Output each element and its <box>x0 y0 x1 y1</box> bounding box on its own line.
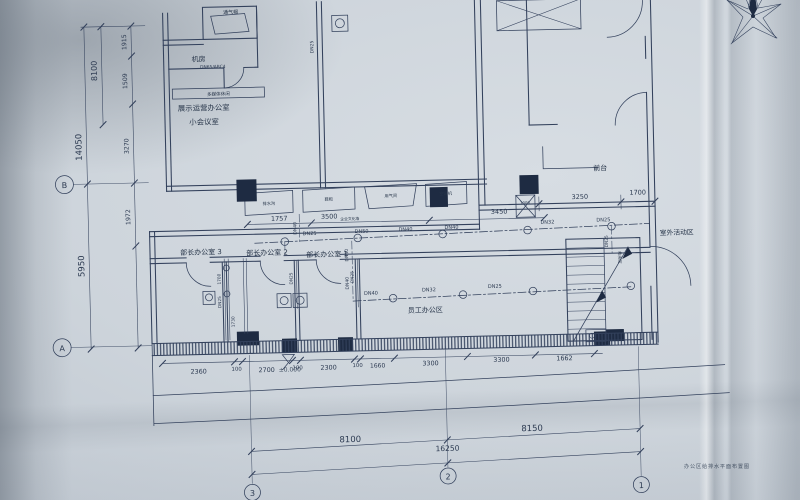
pipe-low-3: DN25 <box>488 284 502 290</box>
dim-overall-8100: 8100 <box>339 435 361 445</box>
label-vent-cap: 通气帽 <box>223 9 238 16</box>
dim-1660: 1660 <box>370 362 386 369</box>
label-front-desk: 前台 <box>593 163 607 172</box>
pipe-up-1: DN25 <box>303 231 317 237</box>
label-machine-room: 机房 <box>192 54 206 63</box>
dim-1915: 1915 <box>121 34 128 50</box>
dim-1972: 1972 <box>125 209 132 225</box>
dim-100a: 100 <box>231 367 242 373</box>
pipe-office1-dn25: DN25 <box>349 271 355 283</box>
label-culture-wall: 企业文化墙 <box>340 216 359 221</box>
dim-riser-1730: 1730 <box>230 316 236 327</box>
pipe-up-4: DN40 <box>444 225 458 231</box>
label-exhibit-office: 展示运营办公室 <box>178 103 230 113</box>
label-shower: 淋浴间 <box>617 250 623 266</box>
dim-3450: 3450 <box>491 208 508 216</box>
dim-100c: 100 <box>352 363 363 369</box>
dim-1662: 1662 <box>556 354 572 362</box>
dim-overall-8150: 8150 <box>521 424 543 434</box>
dim-1000: 1000 <box>520 200 530 205</box>
label-small-meeting: 小会议室 <box>189 117 219 127</box>
blueprint-photo: B A 3 2 1 通气帽 机房 DN65/ABC4 多媒体休闲 展示运营办公室… <box>0 0 800 500</box>
dim-2700: 2700 <box>258 366 274 374</box>
north-compass-icon <box>727 0 781 44</box>
pipe-stair-dn25: DN25 <box>604 235 610 247</box>
grid-row-b: B <box>62 181 68 190</box>
dim-8100-left: 8100 <box>90 61 99 82</box>
pipe-low-2: DN32 <box>422 287 436 293</box>
dim-3270: 3270 <box>123 138 130 154</box>
label-furniture-2: 鞋柜 <box>325 196 334 203</box>
dim-3500: 3500 <box>321 212 338 220</box>
grid-col-3: 3 <box>250 489 255 498</box>
label-office-2: 部长办公室 2 <box>246 248 288 258</box>
label-outdoor-area: 室外活动区 <box>660 227 694 237</box>
dim-2300: 2300 <box>320 363 336 371</box>
label-office-3: 部长办公室 3 <box>180 247 222 257</box>
elevation-value: ±0.000 <box>279 366 302 374</box>
furniture-boxes <box>244 145 599 223</box>
grid-bubbles: B A 3 2 1 <box>49 162 649 500</box>
label-staff-area: 员工办公区 <box>408 305 443 315</box>
pipe-up-2: DN50 <box>355 229 369 235</box>
grid-col-1: 1 <box>639 481 644 490</box>
pipe-labels: DN25 DN50 DN40 DN40 DN32 DN25 DN40 DN32 … <box>283 34 612 299</box>
dim-14050: 14050 <box>74 134 85 161</box>
room-labels: 通气帽 机房 DN65/ABC4 多媒体休闲 展示运营办公室 小会议室 部长办公… <box>175 0 696 320</box>
columns <box>233 171 624 354</box>
label-furniture-3: 用气间 <box>384 192 397 199</box>
dim-3300b: 3300 <box>493 356 509 364</box>
pipe-v-dn40: DN40 <box>292 222 298 235</box>
label-riser-note: DN65/ABC4 <box>200 64 226 71</box>
dim-riser-1700: 1700 <box>216 273 222 284</box>
dim-3300a: 3300 <box>422 359 438 367</box>
label-office-1: 部长办公室 1 <box>306 249 348 259</box>
pipe-office2-dn25: DN25 <box>288 272 294 284</box>
pipe-up-3: DN40 <box>399 227 413 233</box>
dim-1700: 1700 <box>629 188 646 196</box>
dim-3250: 3250 <box>571 193 588 201</box>
pipe-up-5: DN32 <box>540 219 554 225</box>
pipe-shaft-dn25: DN25 <box>309 40 315 53</box>
drawing-skew-group: B A 3 2 1 通气帽 机房 DN65/ABC4 多媒体休闲 展示运营办公室… <box>45 0 731 500</box>
label-furniture-1: 排水沟 <box>263 200 276 207</box>
floor-plan-drawing: B A 3 2 1 通气帽 机房 DN65/ABC4 多媒体休闲 展示运营办公室… <box>0 0 800 500</box>
dim-2360: 2360 <box>190 367 206 375</box>
dim-total-16250: 16250 <box>435 444 459 454</box>
dim-1757: 1757 <box>271 215 288 223</box>
dim-5950: 5950 <box>77 255 87 277</box>
pipe-riser-dn25: DN25 <box>217 296 223 308</box>
grid-col-2: 2 <box>446 472 451 481</box>
grid-row-a: A <box>59 344 65 353</box>
pipe-low-1: DN40 <box>364 291 378 297</box>
pipe-v-dn50: DN50 <box>344 249 350 262</box>
dim-1509: 1509 <box>122 73 129 89</box>
pipe-up-6: DN25 <box>596 217 610 223</box>
sheet-caption: 办公区给排水平面布置图 <box>684 462 750 470</box>
label-media-shelf: 多媒体休闲 <box>207 90 231 98</box>
